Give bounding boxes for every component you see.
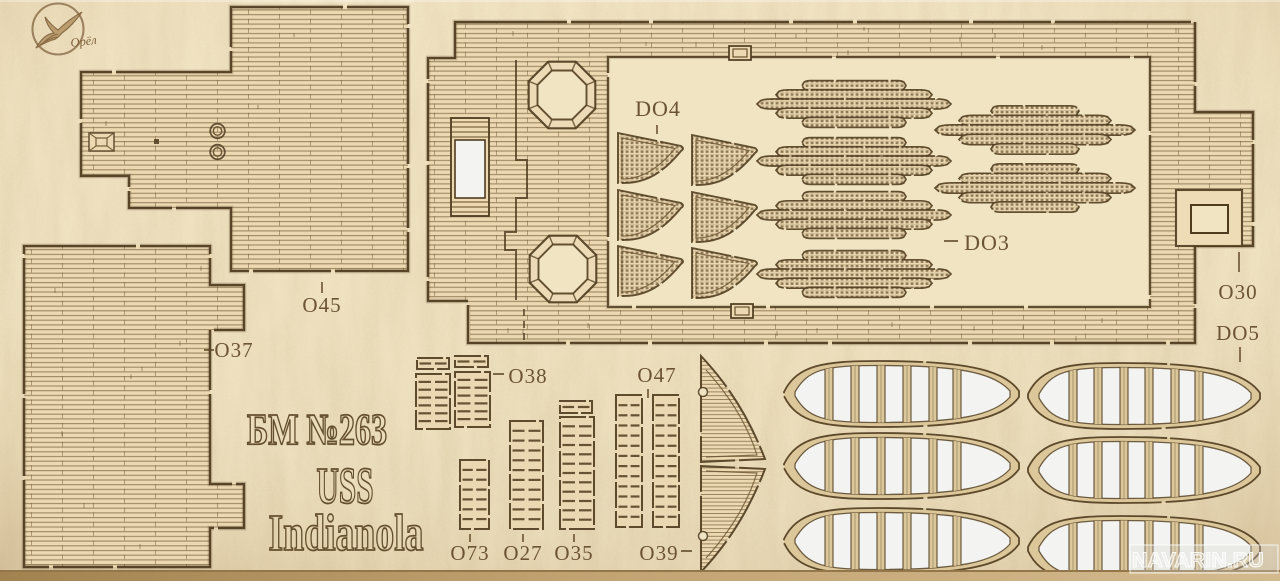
svg-text:O30: O30 <box>1218 280 1257 304</box>
svg-text:БМ №263: БМ №263 <box>247 405 387 454</box>
svg-text:DO4: DO4 <box>635 96 681 121</box>
svg-text:O37: O37 <box>214 338 253 362</box>
svg-text:Indianola: Indianola <box>269 505 424 562</box>
svg-text:O45: O45 <box>302 293 341 317</box>
svg-text:O38: O38 <box>508 364 547 388</box>
svg-text:DO5: DO5 <box>1216 321 1260 345</box>
svg-text:O47: O47 <box>637 363 676 387</box>
svg-text:O73: O73 <box>450 541 489 565</box>
svg-text:NAVARIN.RU: NAVARIN.RU <box>1132 548 1264 572</box>
svg-text:O39: O39 <box>639 541 678 565</box>
svg-text:O35: O35 <box>554 541 593 565</box>
svg-text:O27: O27 <box>503 541 542 565</box>
svg-text:DO3: DO3 <box>964 230 1010 255</box>
